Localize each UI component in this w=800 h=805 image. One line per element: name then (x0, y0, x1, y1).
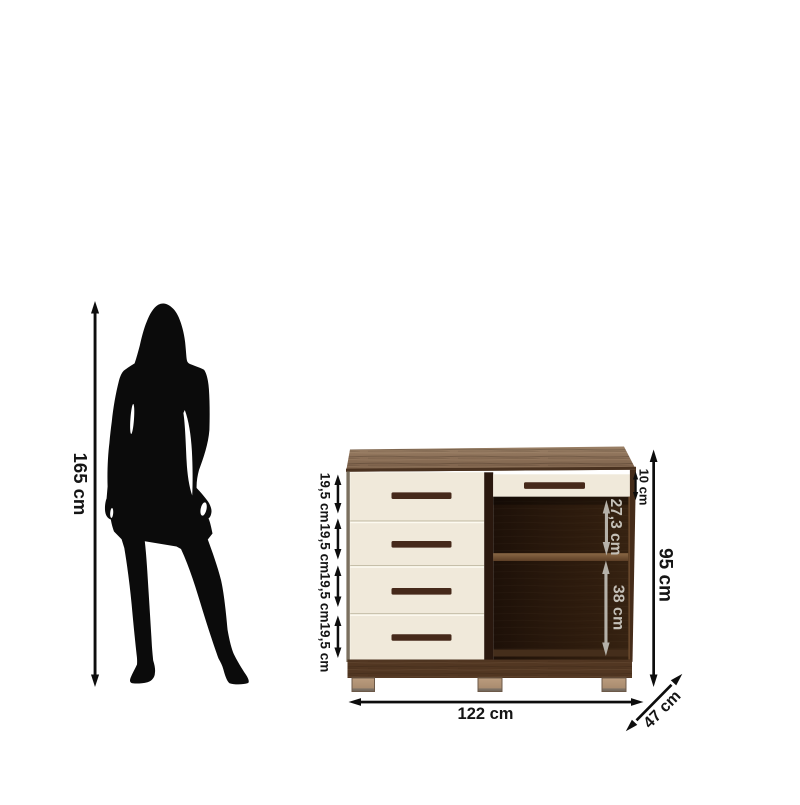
svg-text:165 cm: 165 cm (70, 453, 91, 516)
svg-text:38 cm: 38 cm (609, 585, 626, 630)
svg-text:27,3 cm: 27,3 cm (607, 499, 624, 556)
svg-text:19,5 cm: 19,5 cm (317, 473, 332, 523)
svg-text:19,5 cm: 19,5 cm (317, 622, 332, 672)
svg-text:19,5 cm: 19,5 cm (317, 573, 332, 623)
svg-text:95 cm: 95 cm (654, 548, 675, 602)
svg-text:10 cm: 10 cm (637, 469, 652, 506)
svg-text:122 cm: 122 cm (458, 705, 514, 723)
svg-text:19,5 cm: 19,5 cm (317, 523, 332, 573)
